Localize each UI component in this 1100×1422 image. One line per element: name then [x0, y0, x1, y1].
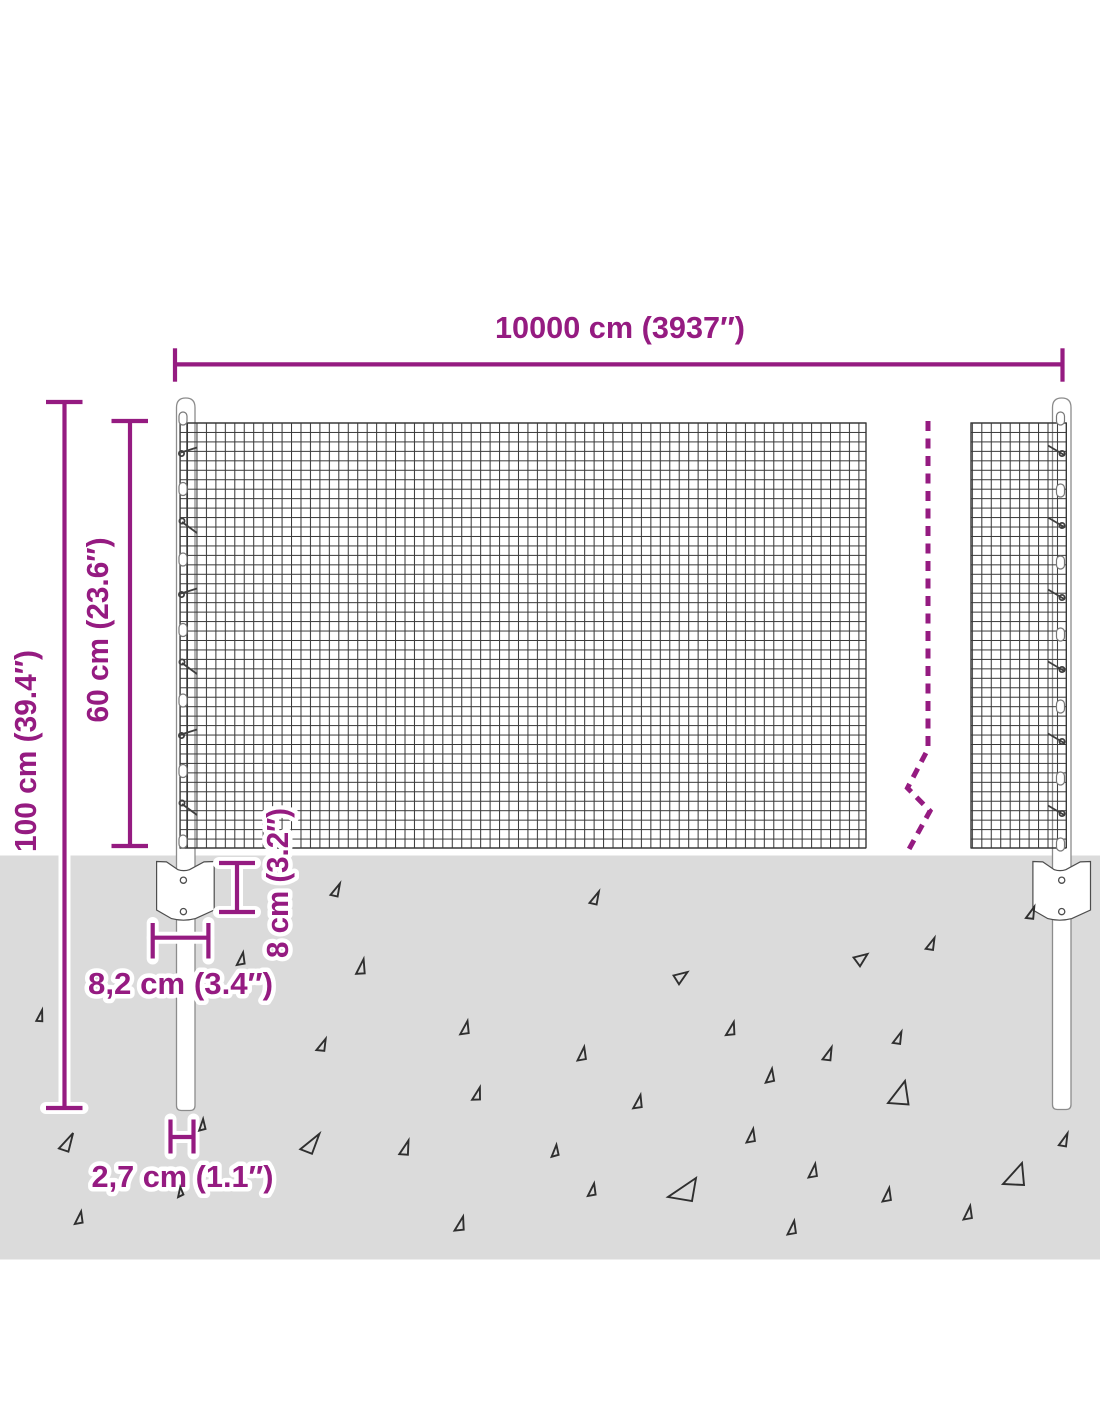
svg-text:8 cm (3.2″): 8 cm (3.2″): [260, 808, 295, 958]
svg-text:100 cm (39.4″): 100 cm (39.4″): [8, 650, 43, 852]
svg-text:8,2 cm (3.4″): 8,2 cm (3.4″): [88, 966, 273, 1001]
svg-text:2,7 cm (1.1″): 2,7 cm (1.1″): [92, 1159, 274, 1194]
svg-text:60 cm (23.6″): 60 cm (23.6″): [80, 538, 115, 723]
svg-text:10000 cm (3937″): 10000 cm (3937″): [495, 310, 745, 345]
